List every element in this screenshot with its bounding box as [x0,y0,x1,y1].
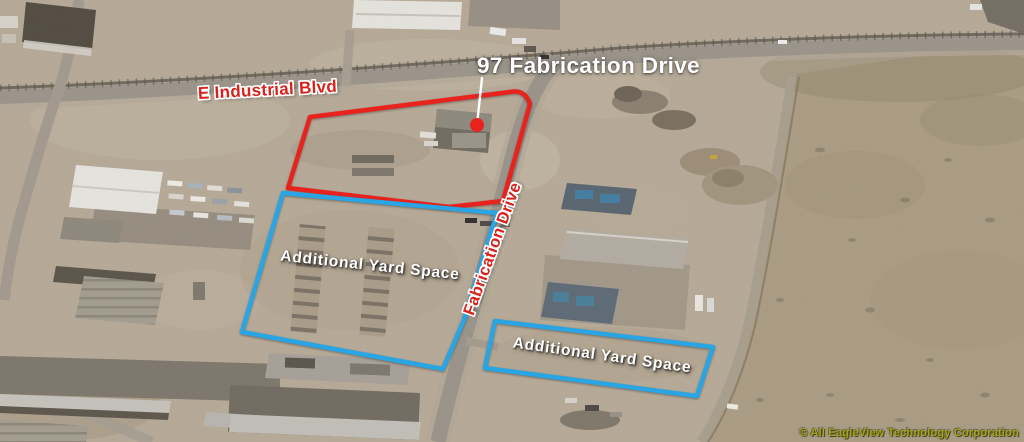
location-marker [470,118,484,132]
copyright-watermark: © All EagleView Technology Corporation [799,427,1019,439]
leader-line [478,78,483,120]
parcel-outline-97-fabrication [288,92,530,208]
property-title: 97 Fabrication Drive [477,53,700,79]
aerial-map: 97 Fabrication Drive E Industrial Blvd F… [0,0,1024,442]
